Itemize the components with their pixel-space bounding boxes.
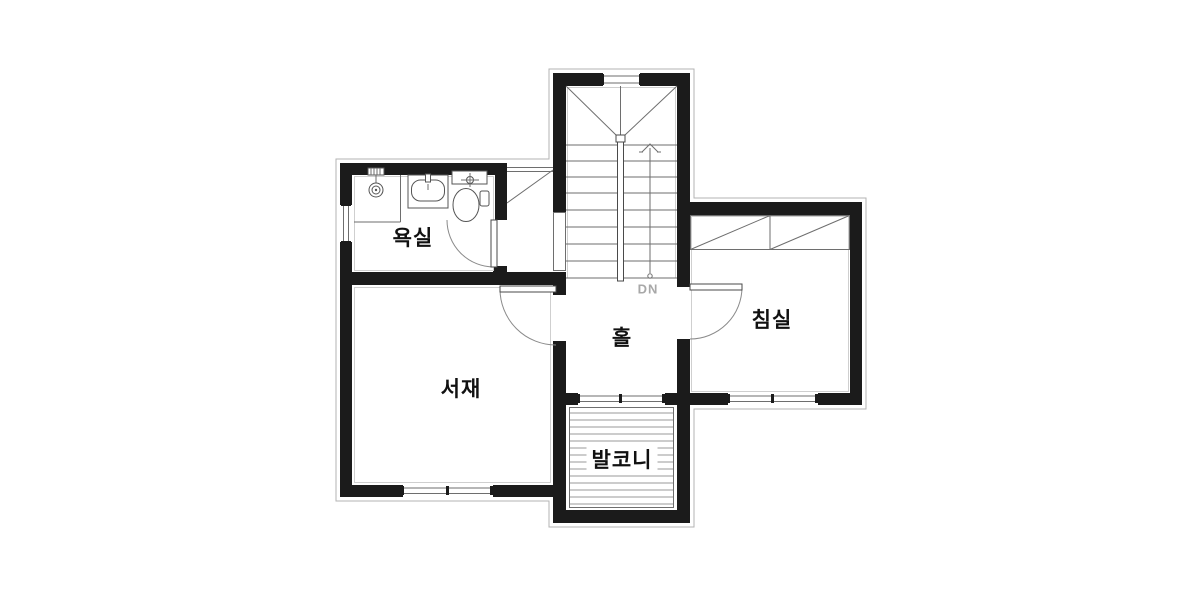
sink-icon: [408, 174, 448, 208]
floor-plan-drawing: [0, 0, 1200, 600]
floor-plan-canvas: 욕실 서재 홀 침실 발코니 DN: [0, 0, 1200, 600]
balcony-label: 발코니: [587, 444, 658, 474]
bathroom-label: 욕실: [393, 222, 434, 252]
stairs-down-label: DN: [638, 282, 659, 297]
hall-label: 홀: [612, 322, 632, 352]
study-label: 서재: [441, 373, 482, 403]
bedroom-label: 침실: [752, 304, 793, 334]
